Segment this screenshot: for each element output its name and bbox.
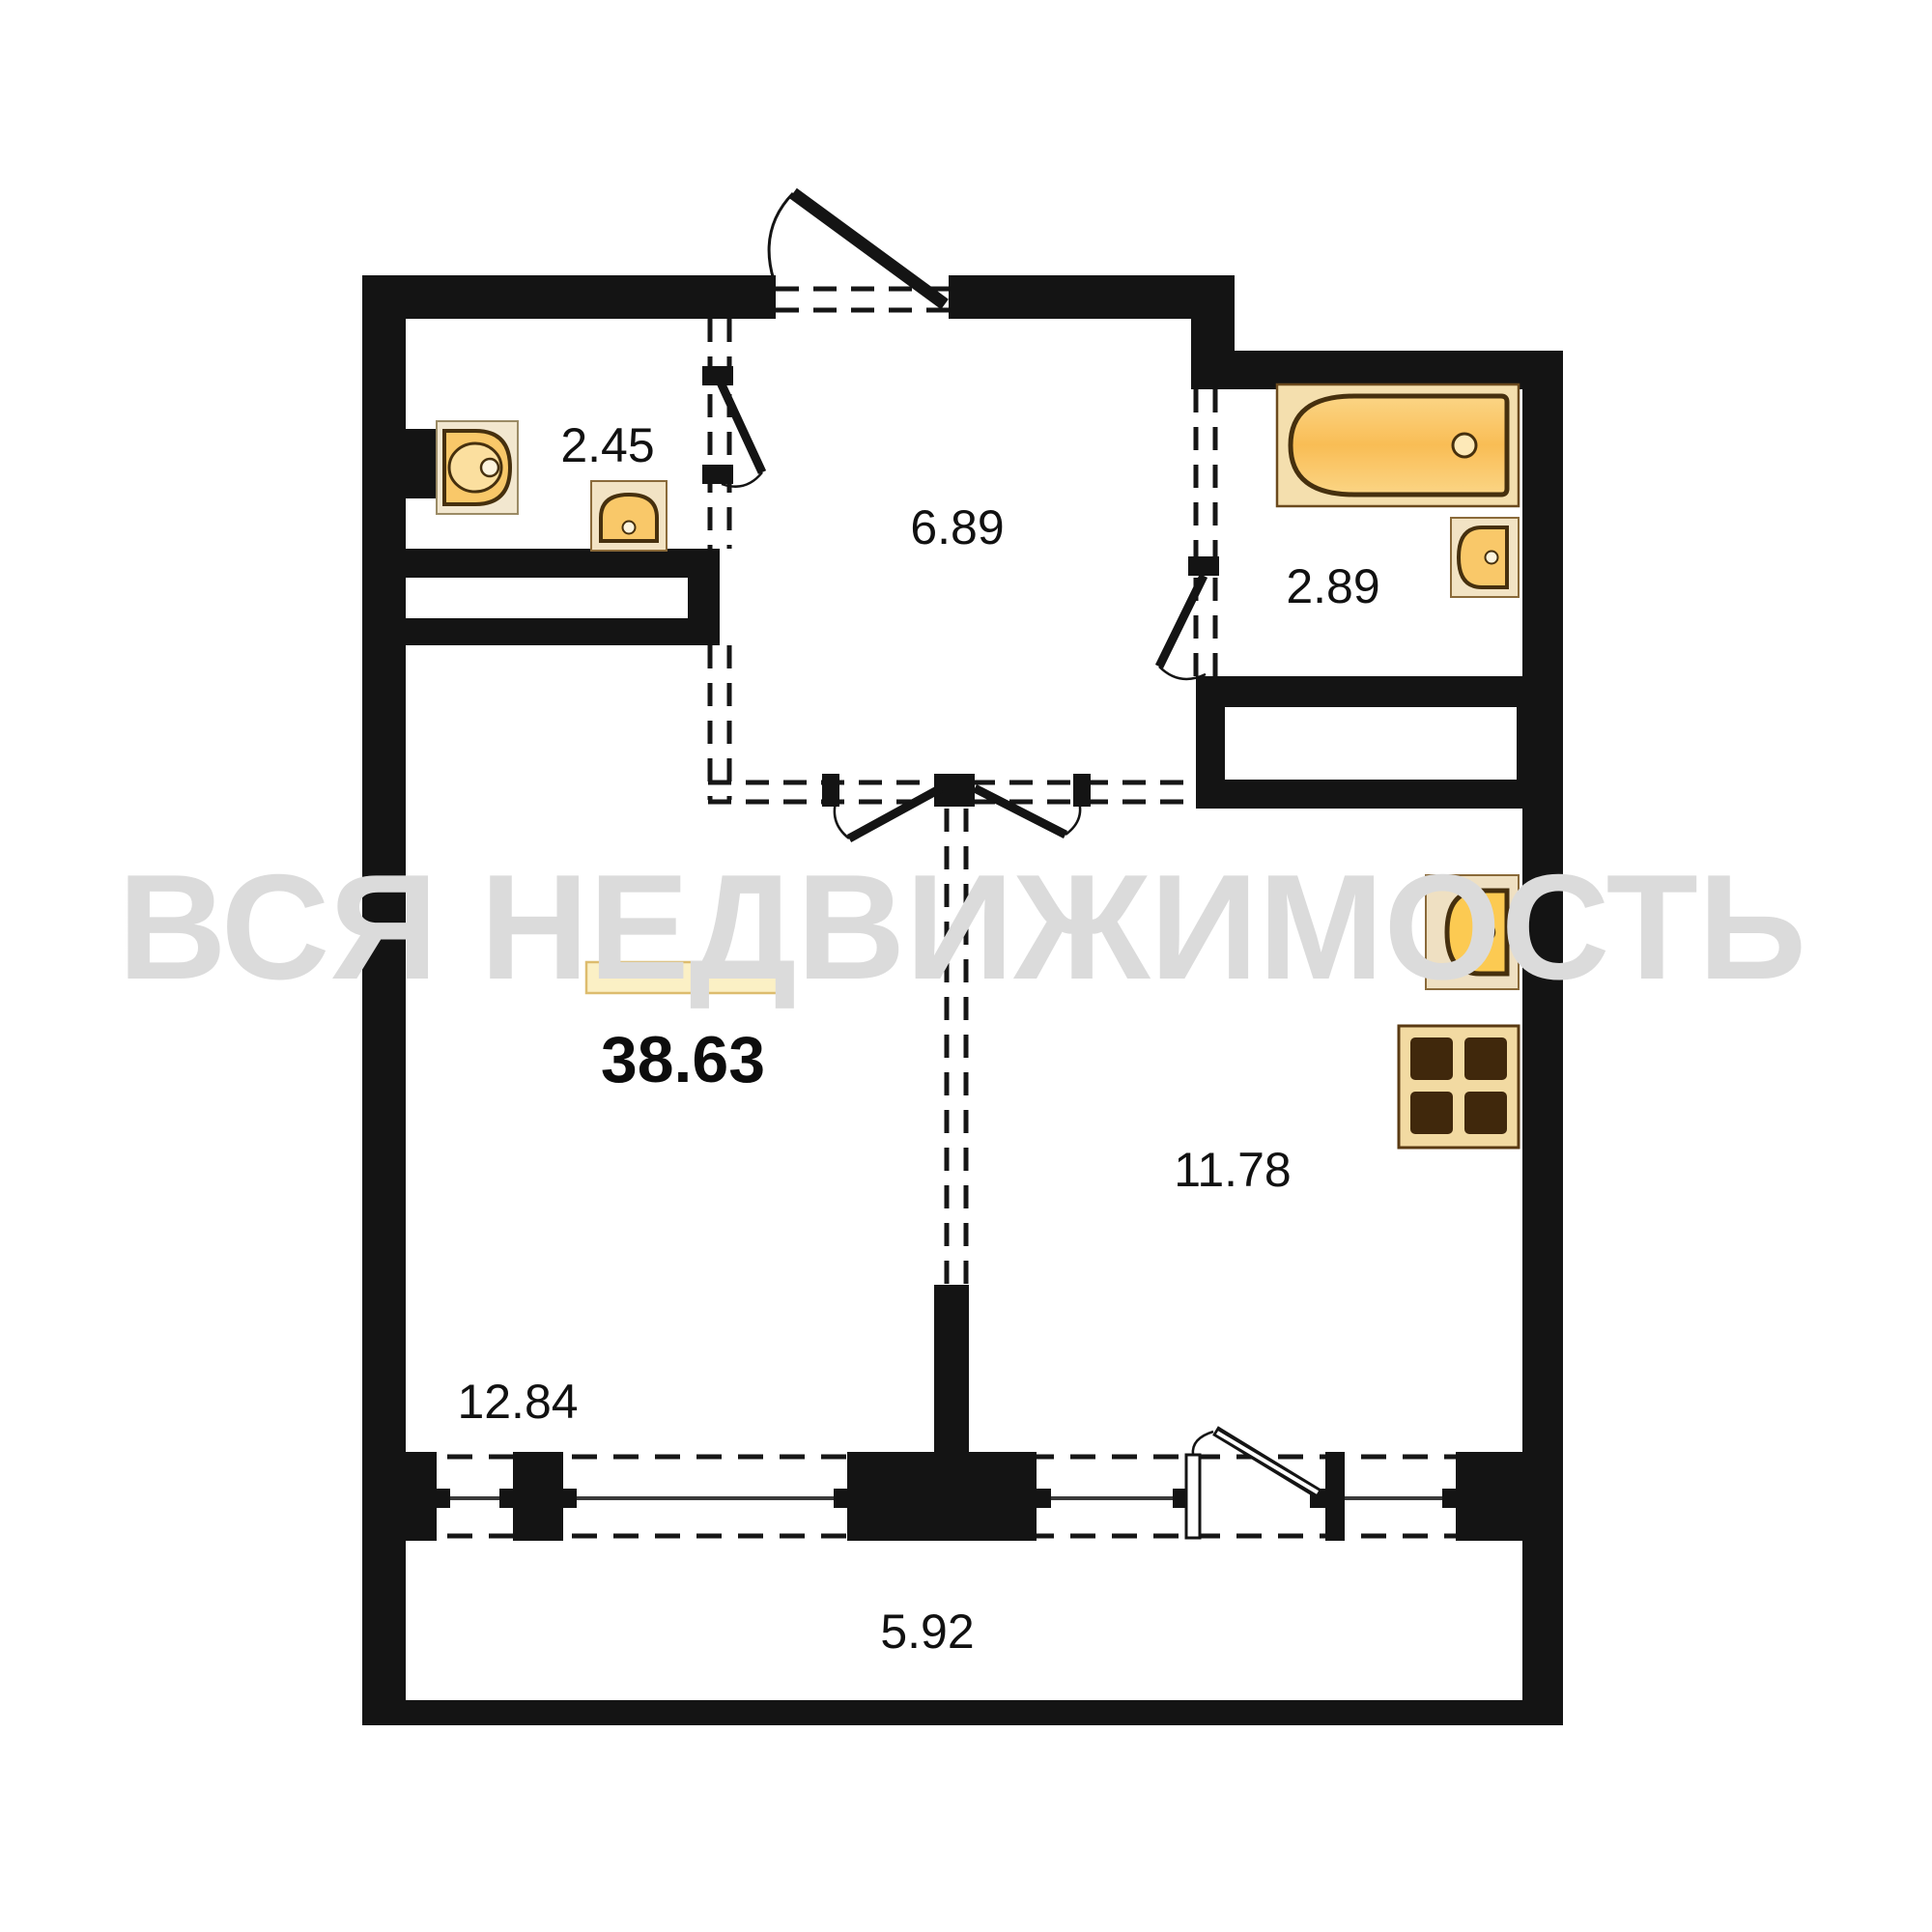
sink-faucet: [1486, 552, 1498, 564]
sink-basin: [1459, 527, 1507, 587]
watermark-text: ВСЯ НЕДВИЖИМОСТЬ: [118, 843, 1806, 1010]
wc-sink-icon: [591, 481, 667, 551]
entrance-door-arc: [769, 193, 793, 280]
bathroom-door: [1159, 556, 1219, 679]
room-label-hallway: 6.89: [910, 500, 1004, 554]
balcony-door-jamb-post: [1186, 1455, 1200, 1538]
toilet-tank: [406, 429, 440, 498]
wc-partition-dashed: [710, 319, 729, 549]
toilet-icon: [406, 421, 518, 514]
glass-nub: [834, 1489, 847, 1508]
wall-top-left: [362, 275, 776, 319]
floor-plan-page: 2.45 6.89 2.89 38.63 11.78 12.84 5.92 ВС…: [0, 0, 1932, 1932]
wall-balcony-bottom: [362, 1700, 1563, 1725]
stove-icon: [1399, 1026, 1519, 1148]
sink-faucet: [623, 522, 636, 534]
total-area-label: 38.63: [601, 1023, 765, 1096]
bathtub-drain: [1453, 434, 1476, 457]
balcony-door-leaf-fill: [1217, 1433, 1318, 1492]
room-label-balcony: 5.92: [880, 1605, 974, 1659]
glass-nub: [1442, 1489, 1456, 1508]
window-corner-block: [1456, 1452, 1563, 1541]
wc-door: [702, 366, 762, 487]
room-label-living: 12.84: [457, 1375, 578, 1429]
double-door-leaf-right: [975, 788, 1065, 835]
door-jamb: [1188, 556, 1219, 576]
balcony-door: [1186, 1431, 1320, 1538]
mullion: [406, 1452, 437, 1541]
wall-kitchen-stub: [934, 1285, 969, 1461]
bathroom-partition-dashed: [1196, 389, 1215, 676]
window-pier: [847, 1452, 1037, 1541]
glass-nub: [1037, 1489, 1051, 1508]
glass-nub: [563, 1489, 577, 1508]
wc-door-leaf: [721, 383, 762, 472]
balcony-door-arc: [1193, 1432, 1213, 1455]
glass-nub: [499, 1489, 513, 1508]
double-door-leaf-left: [849, 788, 941, 838]
glass-nub: [437, 1489, 450, 1508]
vent-shaft: [1225, 707, 1517, 780]
mullion: [513, 1452, 563, 1541]
bathtub-icon: [1277, 384, 1519, 506]
stove-burner: [1410, 1037, 1453, 1080]
bathroom-door-arc: [1159, 667, 1206, 679]
door-jamb: [1073, 774, 1091, 807]
stove-burner: [1410, 1092, 1453, 1134]
stove-burner: [1464, 1037, 1507, 1080]
bathroom-sink-icon: [1451, 518, 1519, 597]
door-jamb: [702, 465, 733, 484]
toilet-drain: [481, 459, 498, 476]
floor-plan: 2.45 6.89 2.89 38.63 11.78 12.84 5.92 ВС…: [0, 0, 1932, 1932]
room-label-bathroom: 2.89: [1286, 559, 1379, 613]
room-label-wc: 2.45: [560, 418, 654, 472]
mullion: [1325, 1452, 1345, 1541]
glass-nub: [1173, 1489, 1186, 1508]
door-jamb: [702, 366, 733, 385]
hall-corner-dashed: [710, 645, 729, 800]
room-label-kitchen: 11.78: [1174, 1143, 1291, 1197]
wc-niche: [406, 578, 688, 618]
stove-burner: [1464, 1092, 1507, 1134]
